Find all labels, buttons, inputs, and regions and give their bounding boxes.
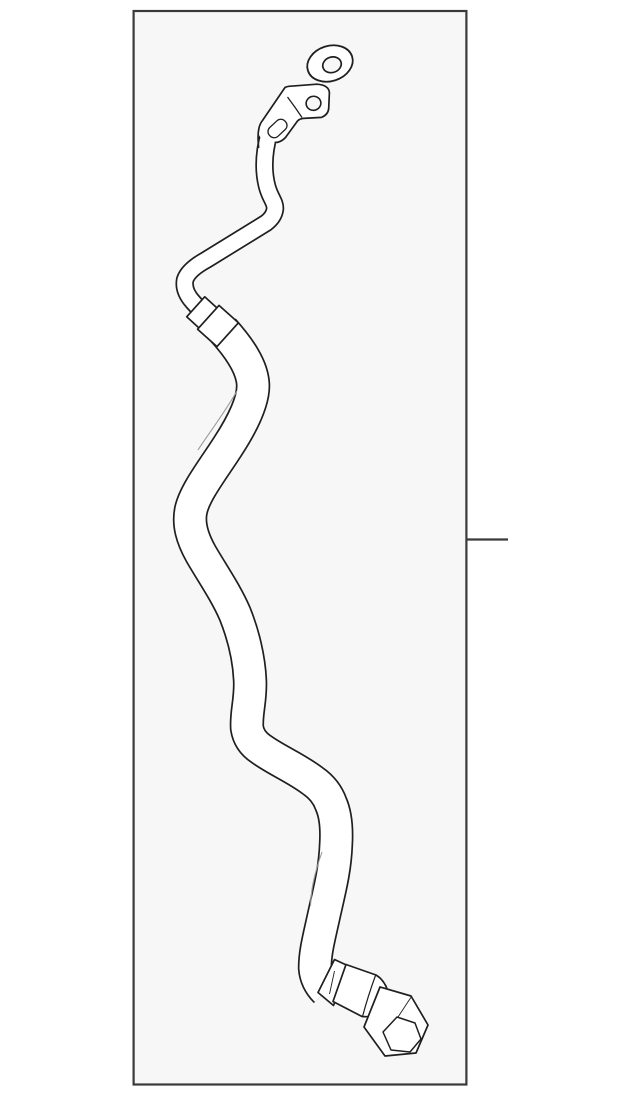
part-illustration xyxy=(0,0,640,1097)
figure-canvas xyxy=(0,0,640,1097)
